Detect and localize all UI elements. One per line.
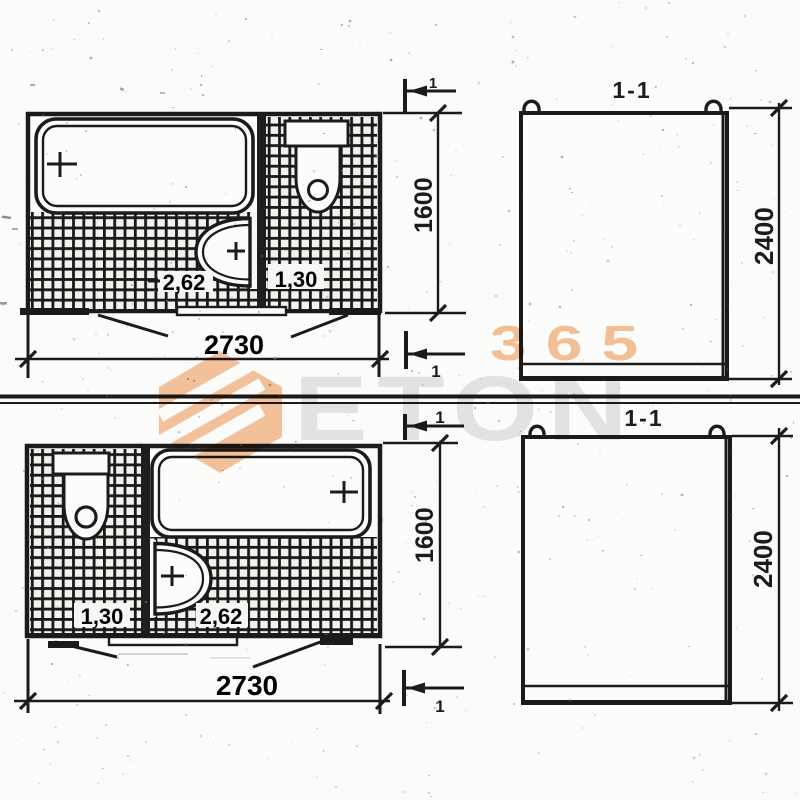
svg-text:2730: 2730 [216,670,278,701]
svg-text:1,30: 1,30 [275,267,318,292]
svg-text:2,62: 2,62 [163,270,206,295]
svg-text:2400: 2400 [749,207,779,265]
svg-text:2,62: 2,62 [200,604,243,629]
svg-text:ETON: ETON [294,357,637,460]
svg-text:365: 365 [490,316,657,371]
svg-text:1: 1 [435,697,444,716]
svg-text:1-1: 1-1 [612,77,651,103]
svg-text:1600: 1600 [411,507,439,563]
svg-text:1,30: 1,30 [81,604,124,629]
svg-text:1600: 1600 [410,177,438,233]
svg-text:2400: 2400 [748,530,778,588]
svg-text:1: 1 [429,75,437,92]
